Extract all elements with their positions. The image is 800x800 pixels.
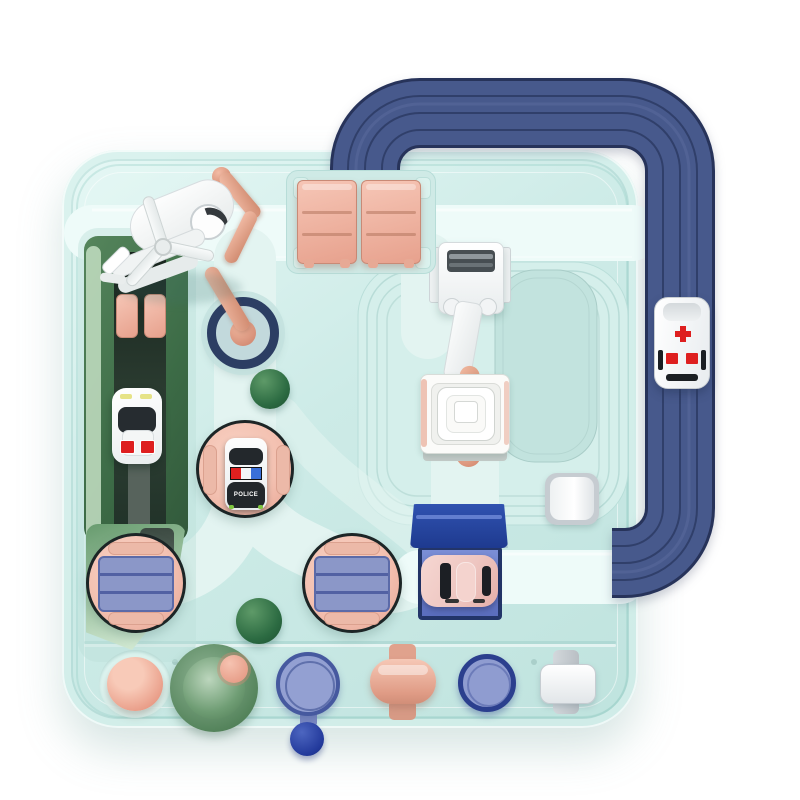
red-cross-icon (675, 326, 691, 342)
gate-bracket (286, 170, 436, 274)
gate-flap-left (297, 180, 357, 264)
bumper (666, 374, 698, 381)
red-square (686, 353, 698, 364)
toy-playset-photo: POLICE (0, 0, 800, 800)
car-detail (701, 350, 706, 370)
car-detail (658, 350, 663, 370)
white-helicopter (100, 180, 260, 320)
red-square (666, 353, 678, 364)
windshield (663, 303, 701, 321)
gate-flap-right (361, 180, 421, 264)
ambulance (654, 297, 710, 389)
rotor-hub (154, 238, 172, 256)
overhead-track (0, 0, 800, 800)
